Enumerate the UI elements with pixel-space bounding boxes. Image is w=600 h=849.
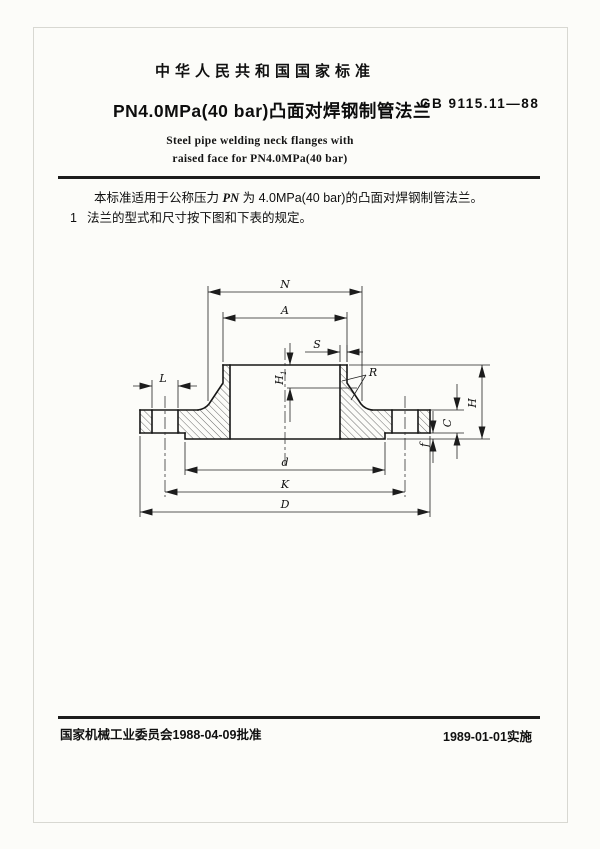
scope-pn-symbol: PN xyxy=(222,191,239,205)
svg-text:f: f xyxy=(418,441,431,448)
standard-number: GB 9115.11—88 xyxy=(420,96,539,111)
dim-label-f: f xyxy=(418,441,431,448)
svg-text:C: C xyxy=(441,418,454,427)
scope-text-part1: 本标准适用于公称压力 xyxy=(94,191,222,205)
dim-label-d: d xyxy=(281,456,288,469)
scope-paragraph: 本标准适用于公称压力 PN 为 4.0MPa(40 bar)的凸面对焊钢制管法兰… xyxy=(70,190,540,207)
dim-label-H1: H 1 xyxy=(273,371,288,386)
flange-technical-drawing: N A S R L H 1 f C H d K D xyxy=(95,270,535,530)
dim-label-H: H xyxy=(466,398,479,409)
footer-divider xyxy=(58,716,540,719)
svg-text:H: H xyxy=(466,398,479,409)
standard-document-page: 中华人民共和国国家标准 PN4.0MPa(40 bar)凸面对焊钢制管法兰 GB… xyxy=(0,0,600,849)
clause-1-text: 法兰的型式和尺寸按下图和下表的规定。 xyxy=(87,211,312,225)
dim-label-L: L xyxy=(158,372,166,385)
section-hatch-left-rim xyxy=(140,410,152,433)
approval-note: 国家机械工业委员会1988-04-09批准 xyxy=(60,724,261,743)
dim-label-K: K xyxy=(280,478,290,491)
dim-label-A: A xyxy=(280,304,289,317)
implementation-note: 1989-01-01实施 xyxy=(443,726,532,745)
dim-label-D: D xyxy=(280,498,290,511)
extension-lines xyxy=(140,286,490,517)
header-divider xyxy=(58,176,540,179)
section-hatch-right-rim xyxy=(418,410,430,433)
dim-label-C: C xyxy=(441,418,454,427)
clause-1: 1法兰的型式和尺寸按下图和下表的规定。 xyxy=(70,207,540,226)
scope-text-part2: 为 4.0MPa(40 bar)的凸面对焊钢制管法兰。 xyxy=(239,191,483,205)
national-standard-heading: 中华人民共和国国家标准 xyxy=(0,60,530,81)
dim-label-S: S xyxy=(313,338,321,351)
page-title: PN4.0MPa(40 bar)凸面对焊钢制管法兰 xyxy=(113,101,431,121)
english-title: Steel pipe welding neck flanges with rai… xyxy=(110,132,410,168)
svg-text:H: H xyxy=(273,375,286,386)
dim-label-N: N xyxy=(279,278,290,291)
english-title-line2: raised face for PN4.0MPa(40 bar) xyxy=(110,150,410,168)
dim-label-R: R xyxy=(368,366,377,379)
english-title-line1: Steel pipe welding neck flanges with xyxy=(110,132,410,150)
svg-text:1: 1 xyxy=(280,371,288,375)
clause-1-number: 1 xyxy=(70,211,77,225)
